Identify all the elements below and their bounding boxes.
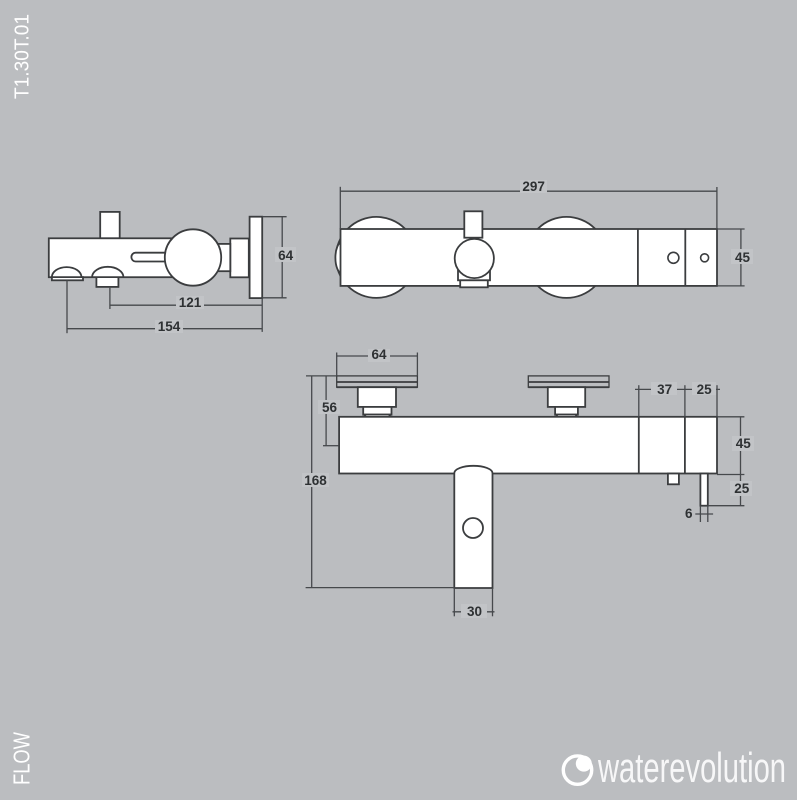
svg-text:waterevolution: waterevolution [597, 744, 786, 791]
svg-text:64: 64 [278, 248, 294, 263]
svg-text:64: 64 [371, 347, 387, 362]
svg-text:T1.30T.01: T1.30T.01 [12, 14, 34, 99]
svg-text:25: 25 [734, 481, 750, 496]
svg-text:154: 154 [158, 319, 181, 334]
svg-text:297: 297 [522, 179, 545, 194]
svg-text:6: 6 [685, 506, 693, 521]
svg-text:45: 45 [735, 250, 751, 265]
svg-text:168: 168 [304, 473, 327, 488]
svg-text:30: 30 [467, 604, 482, 619]
svg-text:45: 45 [736, 436, 752, 451]
svg-text:25: 25 [697, 382, 713, 397]
svg-text:56: 56 [322, 400, 338, 415]
svg-text:37: 37 [657, 382, 672, 397]
svg-text:FLOW: FLOW [9, 731, 35, 785]
svg-text:121: 121 [179, 295, 202, 310]
